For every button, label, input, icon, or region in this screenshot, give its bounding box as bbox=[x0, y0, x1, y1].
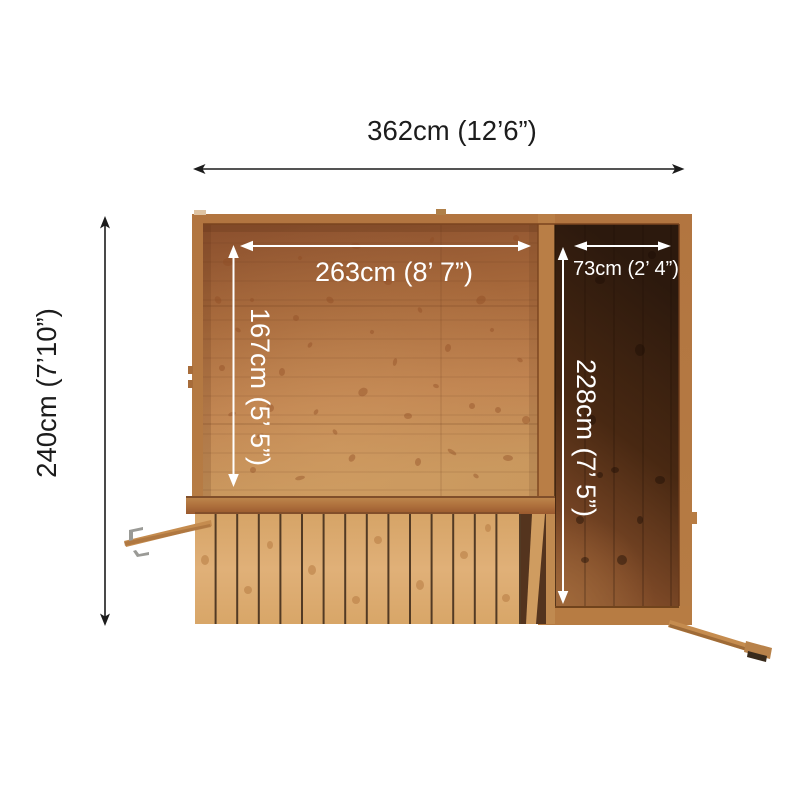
svg-text:228cm (7’ 5”): 228cm (7’ 5”) bbox=[571, 359, 601, 517]
svg-text:240cm (7’10”): 240cm (7’10”) bbox=[31, 308, 62, 478]
svg-text:167cm (5’ 5”): 167cm (5’ 5”) bbox=[245, 308, 275, 466]
svg-text:73cm (2’ 4”): 73cm (2’ 4”) bbox=[573, 258, 679, 280]
svg-text:263cm (8’ 7”): 263cm (8’ 7”) bbox=[315, 257, 473, 287]
svg-text:362cm (12’6”): 362cm (12’6”) bbox=[367, 115, 537, 146]
